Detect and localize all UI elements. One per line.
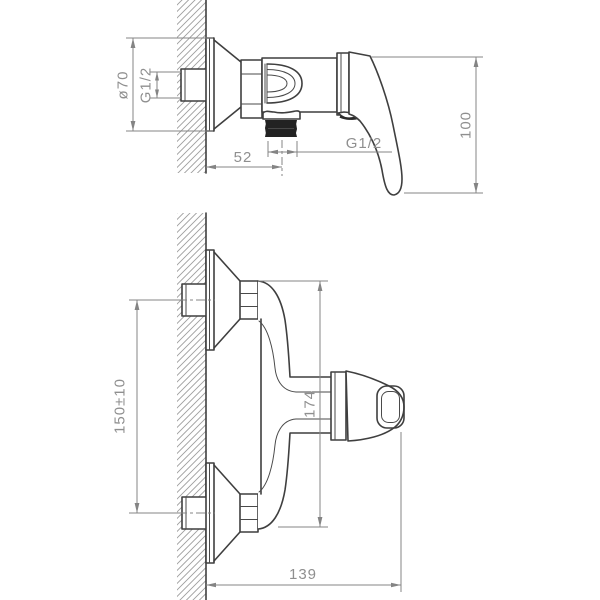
label-100: 100 [458,111,475,139]
top-escutcheon-cone [214,252,240,348]
bottom-escutcheon-cone [214,465,240,561]
shower-mixer-drawing: ø70 G1/2 G1/2 52 [0,0,600,600]
label-dia70: ø70 [115,71,132,100]
top-eccentric-nut [240,281,258,319]
label-174: 174 [302,390,319,418]
dim-wall-to-outlet: 52 [206,140,282,176]
dim-inlet-thread: G1/2 [138,67,182,104]
dim-wall-to-handle: 139 [206,432,401,592]
front-view: 150±10 174 139 [112,213,405,600]
technical-drawing-page: ø70 G1/2 G1/2 52 [0,0,600,600]
side-view: ø70 G1/2 G1/2 52 [115,0,484,195]
eccentric-nut [241,60,262,118]
wall-hatch [177,213,206,600]
mixer-body [262,58,337,112]
label-inlet-g12: G1/2 [138,67,155,104]
label-150: 150±10 [112,378,129,434]
label-outlet-g12: G1/2 [346,135,383,152]
mixer-body [258,281,333,529]
outlet-flange [263,111,300,119]
bottom-eccentric-nut [240,494,258,532]
dim-outlet-thread: G1/2 [268,135,392,157]
cartridge-collar [331,372,346,440]
cartridge-collar [337,53,349,115]
lever-handle [349,52,402,195]
label-52: 52 [234,149,253,166]
label-139: 139 [289,566,317,583]
escutcheon-cone [214,40,241,129]
handle-end [346,371,404,441]
